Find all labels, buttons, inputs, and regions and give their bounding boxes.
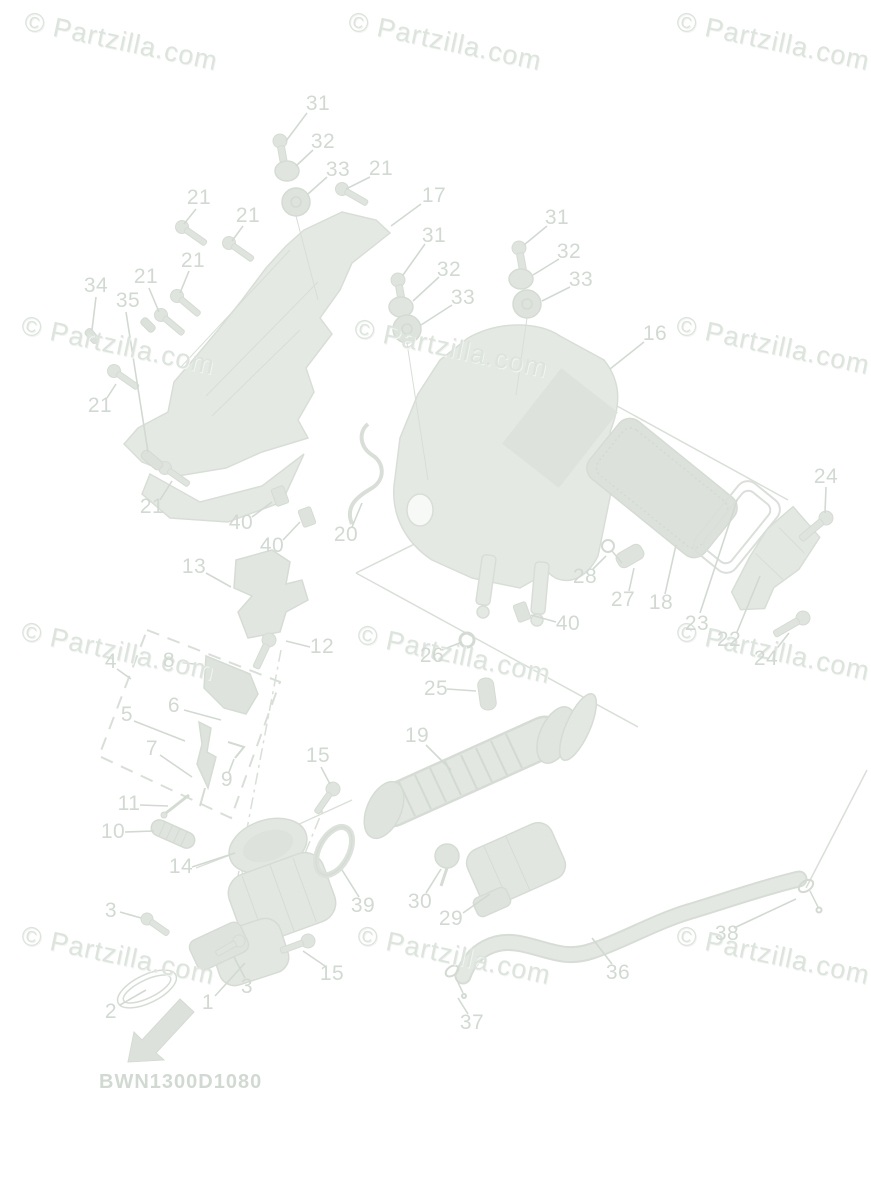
leader-line-21 <box>184 209 196 224</box>
callout-35[interactable]: 35 <box>116 289 140 313</box>
leader-line-6 <box>184 710 221 720</box>
leader-line-7 <box>160 755 192 777</box>
callout-15[interactable]: 15 <box>306 744 330 768</box>
leader-line-31 <box>403 244 425 275</box>
callout-36[interactable]: 36 <box>606 961 630 985</box>
part-ring-28 <box>602 540 622 563</box>
callout-33[interactable]: 33 <box>569 268 593 292</box>
leader-line-11 <box>140 805 168 806</box>
leader-line-3 <box>120 912 141 918</box>
callout-14[interactable]: 14 <box>169 855 193 879</box>
leader-line-5 <box>134 721 185 741</box>
callout-34[interactable]: 34 <box>84 274 108 298</box>
callout-2[interactable]: 2 <box>105 1000 117 1024</box>
callout-32[interactable]: 32 <box>437 258 461 282</box>
part-bracket-13 <box>234 550 308 638</box>
callout-22[interactable]: 22 <box>717 628 741 652</box>
leader-line-40 <box>283 522 300 540</box>
callout-18[interactable]: 18 <box>649 591 673 615</box>
callout-31[interactable]: 31 <box>545 206 569 230</box>
callout-40[interactable]: 40 <box>556 612 580 636</box>
leader-line-32 <box>413 277 439 301</box>
callout-37[interactable]: 37 <box>460 1011 484 1035</box>
callout-21[interactable]: 21 <box>134 265 158 289</box>
callout-38[interactable]: 38 <box>715 922 739 946</box>
callout-16[interactable]: 16 <box>643 322 667 346</box>
leader-line-31 <box>524 226 547 245</box>
callout-32[interactable]: 32 <box>557 240 581 264</box>
diagram-code: BWN1300D1080 <box>99 1071 262 1094</box>
part-sensor-30 <box>435 844 459 886</box>
part-clamp-39 <box>309 821 360 881</box>
diagram-canvas <box>0 0 871 1200</box>
leader-line-32 <box>533 259 559 275</box>
part-duct-19 <box>356 689 603 844</box>
callout-21[interactable]: 21 <box>88 394 112 418</box>
leader-line-13 <box>206 573 231 587</box>
leader-line-21 <box>180 271 189 293</box>
leader-line-24 <box>825 487 826 513</box>
callout-6[interactable]: 6 <box>168 694 180 718</box>
part-arrow-9 <box>228 742 244 758</box>
callout-39[interactable]: 39 <box>351 894 375 918</box>
leader-line-21 <box>149 288 159 312</box>
callout-40[interactable]: 40 <box>229 511 253 535</box>
callout-10[interactable]: 10 <box>101 820 125 844</box>
leader-line-21 <box>232 226 243 241</box>
callout-11[interactable]: 11 <box>118 792 141 816</box>
callout-3[interactable]: 3 <box>105 899 117 923</box>
callout-12[interactable]: 12 <box>310 635 334 659</box>
callout-33[interactable]: 33 <box>326 158 350 182</box>
leader-line-39 <box>342 870 359 897</box>
callout-21[interactable]: 21 <box>181 249 205 273</box>
callout-25[interactable]: 25 <box>424 677 448 701</box>
leader-line-16 <box>610 342 644 369</box>
callout-30[interactable]: 30 <box>408 890 432 914</box>
callout-1[interactable]: 1 <box>202 991 214 1015</box>
callout-13[interactable]: 13 <box>182 555 206 579</box>
callout-32[interactable]: 32 <box>311 130 335 154</box>
parts-diagram: BWN1300D1080 © Partzilla.com© Partzilla.… <box>0 0 871 1200</box>
leader-line-25 <box>447 689 476 691</box>
callout-21[interactable]: 21 <box>187 186 211 210</box>
leader-line-15 <box>321 767 330 784</box>
leader-line-4 <box>117 669 131 679</box>
callout-15[interactable]: 15 <box>320 962 344 986</box>
callout-24[interactable]: 24 <box>754 647 778 671</box>
callout-3[interactable]: 3 <box>241 975 253 999</box>
callout-21[interactable]: 21 <box>140 495 164 519</box>
callout-33[interactable]: 33 <box>451 286 475 310</box>
callout-21[interactable]: 21 <box>369 157 393 181</box>
leader-line-31 <box>286 113 307 141</box>
callout-27[interactable]: 27 <box>611 588 635 612</box>
leader-line-18 <box>665 545 676 594</box>
callout-31[interactable]: 31 <box>306 92 330 116</box>
callout-28[interactable]: 28 <box>573 565 597 589</box>
callout-29[interactable]: 29 <box>439 907 463 931</box>
callout-23[interactable]: 23 <box>685 612 709 636</box>
callout-9[interactable]: 9 <box>221 768 233 792</box>
callout-19[interactable]: 19 <box>405 724 429 748</box>
callout-20[interactable]: 20 <box>334 523 358 547</box>
callout-4[interactable]: 4 <box>105 650 117 674</box>
part-spring-10 <box>149 817 198 850</box>
part-cover-22 <box>717 503 827 622</box>
part-needle-set-5-6-7 <box>197 722 216 806</box>
callout-5[interactable]: 5 <box>121 703 133 727</box>
callout-8[interactable]: 8 <box>163 649 175 673</box>
leader-line-33 <box>308 177 327 194</box>
part-tube-20 <box>350 424 382 524</box>
leader-line-33 <box>542 287 570 301</box>
callout-17[interactable]: 17 <box>422 184 446 208</box>
callout-31[interactable]: 31 <box>422 224 446 248</box>
leader-line-14 <box>192 853 235 867</box>
callout-26[interactable]: 26 <box>420 644 444 668</box>
callout-21[interactable]: 21 <box>236 204 260 228</box>
leader-line-12 <box>286 641 310 647</box>
leader-line-10 <box>125 831 154 832</box>
part-plug-25 <box>477 677 497 711</box>
part-cap-27 <box>614 542 646 570</box>
leader-line-17 <box>391 204 421 226</box>
callout-24[interactable]: 24 <box>814 465 838 489</box>
callout-40[interactable]: 40 <box>260 534 284 558</box>
direction-arrow <box>128 999 194 1062</box>
callout-7[interactable]: 7 <box>146 737 158 761</box>
leader-line-33 <box>421 305 452 325</box>
